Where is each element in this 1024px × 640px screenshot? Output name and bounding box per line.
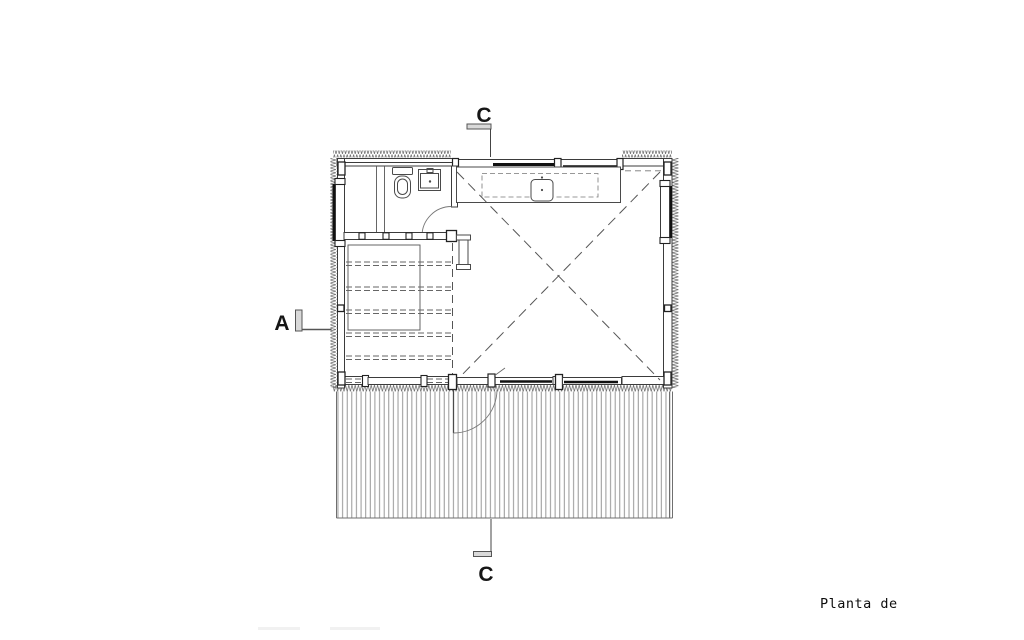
bathroom-sink-fixture — [419, 169, 441, 191]
radiator-unit — [457, 235, 471, 270]
post-bottom-left — [338, 372, 345, 385]
sleeping-platform-area — [346, 243, 453, 384]
toilet-tank — [393, 168, 413, 175]
bathroom-sink-drain — [429, 180, 431, 182]
post-bottom-right — [664, 372, 671, 385]
south-window1-cap-right — [421, 376, 427, 387]
section-flag-c-top — [467, 124, 491, 129]
west-window-cap-bottom — [335, 241, 345, 247]
section-flag-a — [296, 310, 303, 331]
ceiling-cross-dashed — [457, 172, 660, 380]
section-marker-a-left: A — [274, 310, 331, 335]
section-label-c-bottom: C — [478, 563, 493, 586]
hatch-top-right — [622, 151, 672, 158]
radiator-body — [459, 240, 468, 265]
radiator-cap-bottom — [457, 265, 471, 270]
floor-plan-canvas: C A C Planta de Arquitectura — [0, 0, 1024, 640]
toilet-fixture — [393, 168, 413, 199]
kitchen-faucet-dot — [541, 176, 543, 178]
bathroom — [344, 166, 458, 242]
entry-door-hinge-post — [488, 374, 495, 387]
kitchen-sink-drain — [541, 189, 543, 191]
hatch-right-wall — [672, 158, 679, 388]
drawing-title-line1: Planta de — [820, 596, 924, 613]
south-window-unit-1 — [368, 378, 421, 385]
wall-post — [406, 233, 412, 240]
east-window-frame — [661, 186, 670, 238]
east-window-cap-top — [660, 181, 670, 187]
wall-post — [383, 233, 389, 240]
loft-joists-dashed — [346, 262, 451, 383]
hatch-top-left — [333, 151, 451, 158]
hatch-deck-edge — [333, 385, 672, 392]
west-window-frame — [336, 184, 345, 241]
toilet-bowl-inner — [398, 179, 408, 195]
post-left-wall-mid — [338, 305, 345, 312]
section-marker-c-top: C — [467, 104, 492, 157]
post-top-left — [338, 162, 345, 175]
section-marker-c-bottom: C — [474, 519, 494, 586]
platform-outline — [348, 245, 420, 330]
post-right-wall-mid — [665, 305, 672, 312]
drawing-title: Planta de Arquitectura — [820, 562, 924, 640]
post-top-right — [664, 162, 671, 175]
radiator-cap-top — [457, 235, 471, 240]
cropped-mark-1 — [258, 627, 300, 630]
door-direction-tick — [494, 368, 505, 376]
south-post-2 — [556, 375, 563, 390]
section-label-a: A — [274, 312, 289, 335]
south-post-1 — [449, 375, 457, 390]
wall-post — [427, 233, 433, 240]
floor-plan-drawing: C A C — [0, 0, 1024, 640]
deck — [337, 392, 673, 519]
wall-post — [359, 233, 365, 240]
cropped-mark-2 — [330, 627, 380, 630]
door-jamb-post — [447, 231, 457, 242]
cropped-scale-marks — [258, 627, 380, 630]
section-flag-c-bottom — [474, 552, 492, 557]
west-window-cap-top — [335, 179, 345, 185]
east-window-cap-bottom — [660, 238, 670, 244]
deck-planks — [337, 392, 671, 519]
